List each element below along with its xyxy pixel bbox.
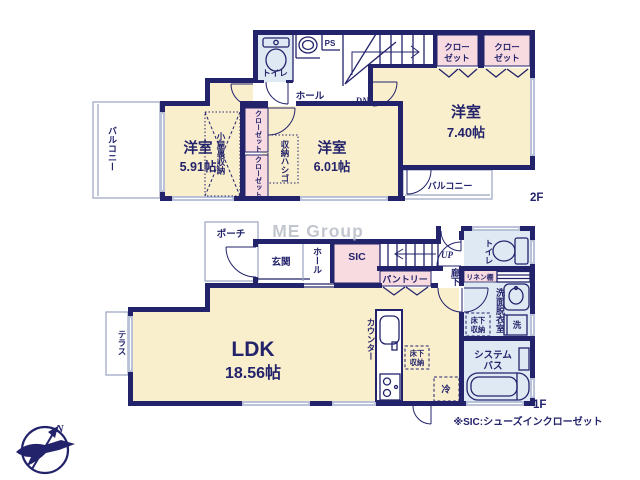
label-fridge: 冷 [441,384,450,395]
room-1f-toilet [464,231,530,266]
label-pantry: パントリー [382,274,427,285]
label-2f-dn: DN [355,96,369,106]
label-2f-room601-name: 洋室 [318,139,347,157]
floor-2f: トイレ PS ホール DN クロー ゼット クロー ゼット 洋室 7.40帖 洋… [93,30,543,204]
label-2f-ps: PS [325,39,336,48]
label-2f-closet1-l1: クロー [444,42,470,52]
label-counter: カウンター [366,318,376,361]
label-underfloor-wash-l1: 床下 [471,316,485,325]
label-2f-room601-size: 6.01帖 [314,159,351,174]
label-2f-closet-v1: クローゼット [255,110,263,152]
room-1f-ldk [133,288,459,401]
label-linen: リネン棚 [466,273,493,282]
label-2f-balcony-right: バルコニー [428,181,473,191]
label-2f-room591-size: 5.91帖 [180,159,217,174]
label-2f-closet2-l1: クロー [494,42,520,52]
label-entrance: 玄関 [271,256,290,268]
label-2f-room740-name: 洋室 [451,103,481,121]
label-1f-toilet: トイレ [484,239,494,265]
label-terrace: テラス [117,330,127,356]
label-1f-hall: ホール [312,247,322,274]
label-2f-room591-name: 洋室 [184,139,213,157]
label-washer: 洗 [513,320,522,330]
balcony-2f-left [93,102,160,198]
label-2f-floor: 2F [530,192,543,204]
sic-footnote: ※SIC:シューズインクローゼット [453,415,602,428]
floor-plan-page: トイレ PS ホール DN クロー ゼット クロー ゼット 洋室 7.40帖 洋… [0,0,640,480]
floor-1f: ポーチ 玄関 ホール SIC パントリー UP 廊下 トイレ リネン棚 洗面脱衣… [106,222,546,424]
label-bath-l2: バス [483,360,502,372]
label-underfloor-kitchen-l2: 収納 [410,358,424,367]
label-underfloor-kitchen-l1: 床下 [410,349,424,358]
label-2f-ladder: 収納ハシゴ [280,139,290,182]
room-1f-sic [334,244,380,283]
label-2f-hall: ホール [296,91,325,102]
label-bath-l1: システム [474,350,512,361]
basin-fixture-2f [296,32,320,58]
label-up: UP [441,250,453,260]
label-1f-floor: 1F [533,399,546,411]
entrance-step-lines [258,244,336,287]
label-washroom: 洗面脱衣室 [495,287,505,333]
label-2f-toilet: トイレ [262,68,288,78]
label-2f-closet1-l2: ゼット [444,53,470,63]
kitchen-counter [376,310,402,401]
label-porch: ポーチ [217,228,246,240]
label-2f-attic: 小屋裏収納 [216,131,226,175]
label-sic: SIC [348,251,366,263]
label-2f-balcony-left: バルコニー [107,126,117,171]
stairs-1f [380,244,438,266]
label-2f-room740-size: 7.40帖 [447,125,485,140]
label-2f-closet2-l2: ゼット [494,53,520,63]
watermark: ME Group [272,221,364,241]
compass: N [16,424,75,473]
floor-plan-drawing: トイレ PS ホール DN クロー ゼット クロー ゼット 洋室 7.40帖 洋… [0,0,640,480]
label-2f-closet-v2: クローゼット [255,156,263,198]
compass-n-label: N [55,424,64,435]
label-corridor: 廊下 [450,267,460,287]
label-ldk-size: 18.56帖 [225,363,281,382]
label-underfloor-wash-l2: 収納 [471,325,485,334]
label-ldk-name: LDK [231,338,274,361]
